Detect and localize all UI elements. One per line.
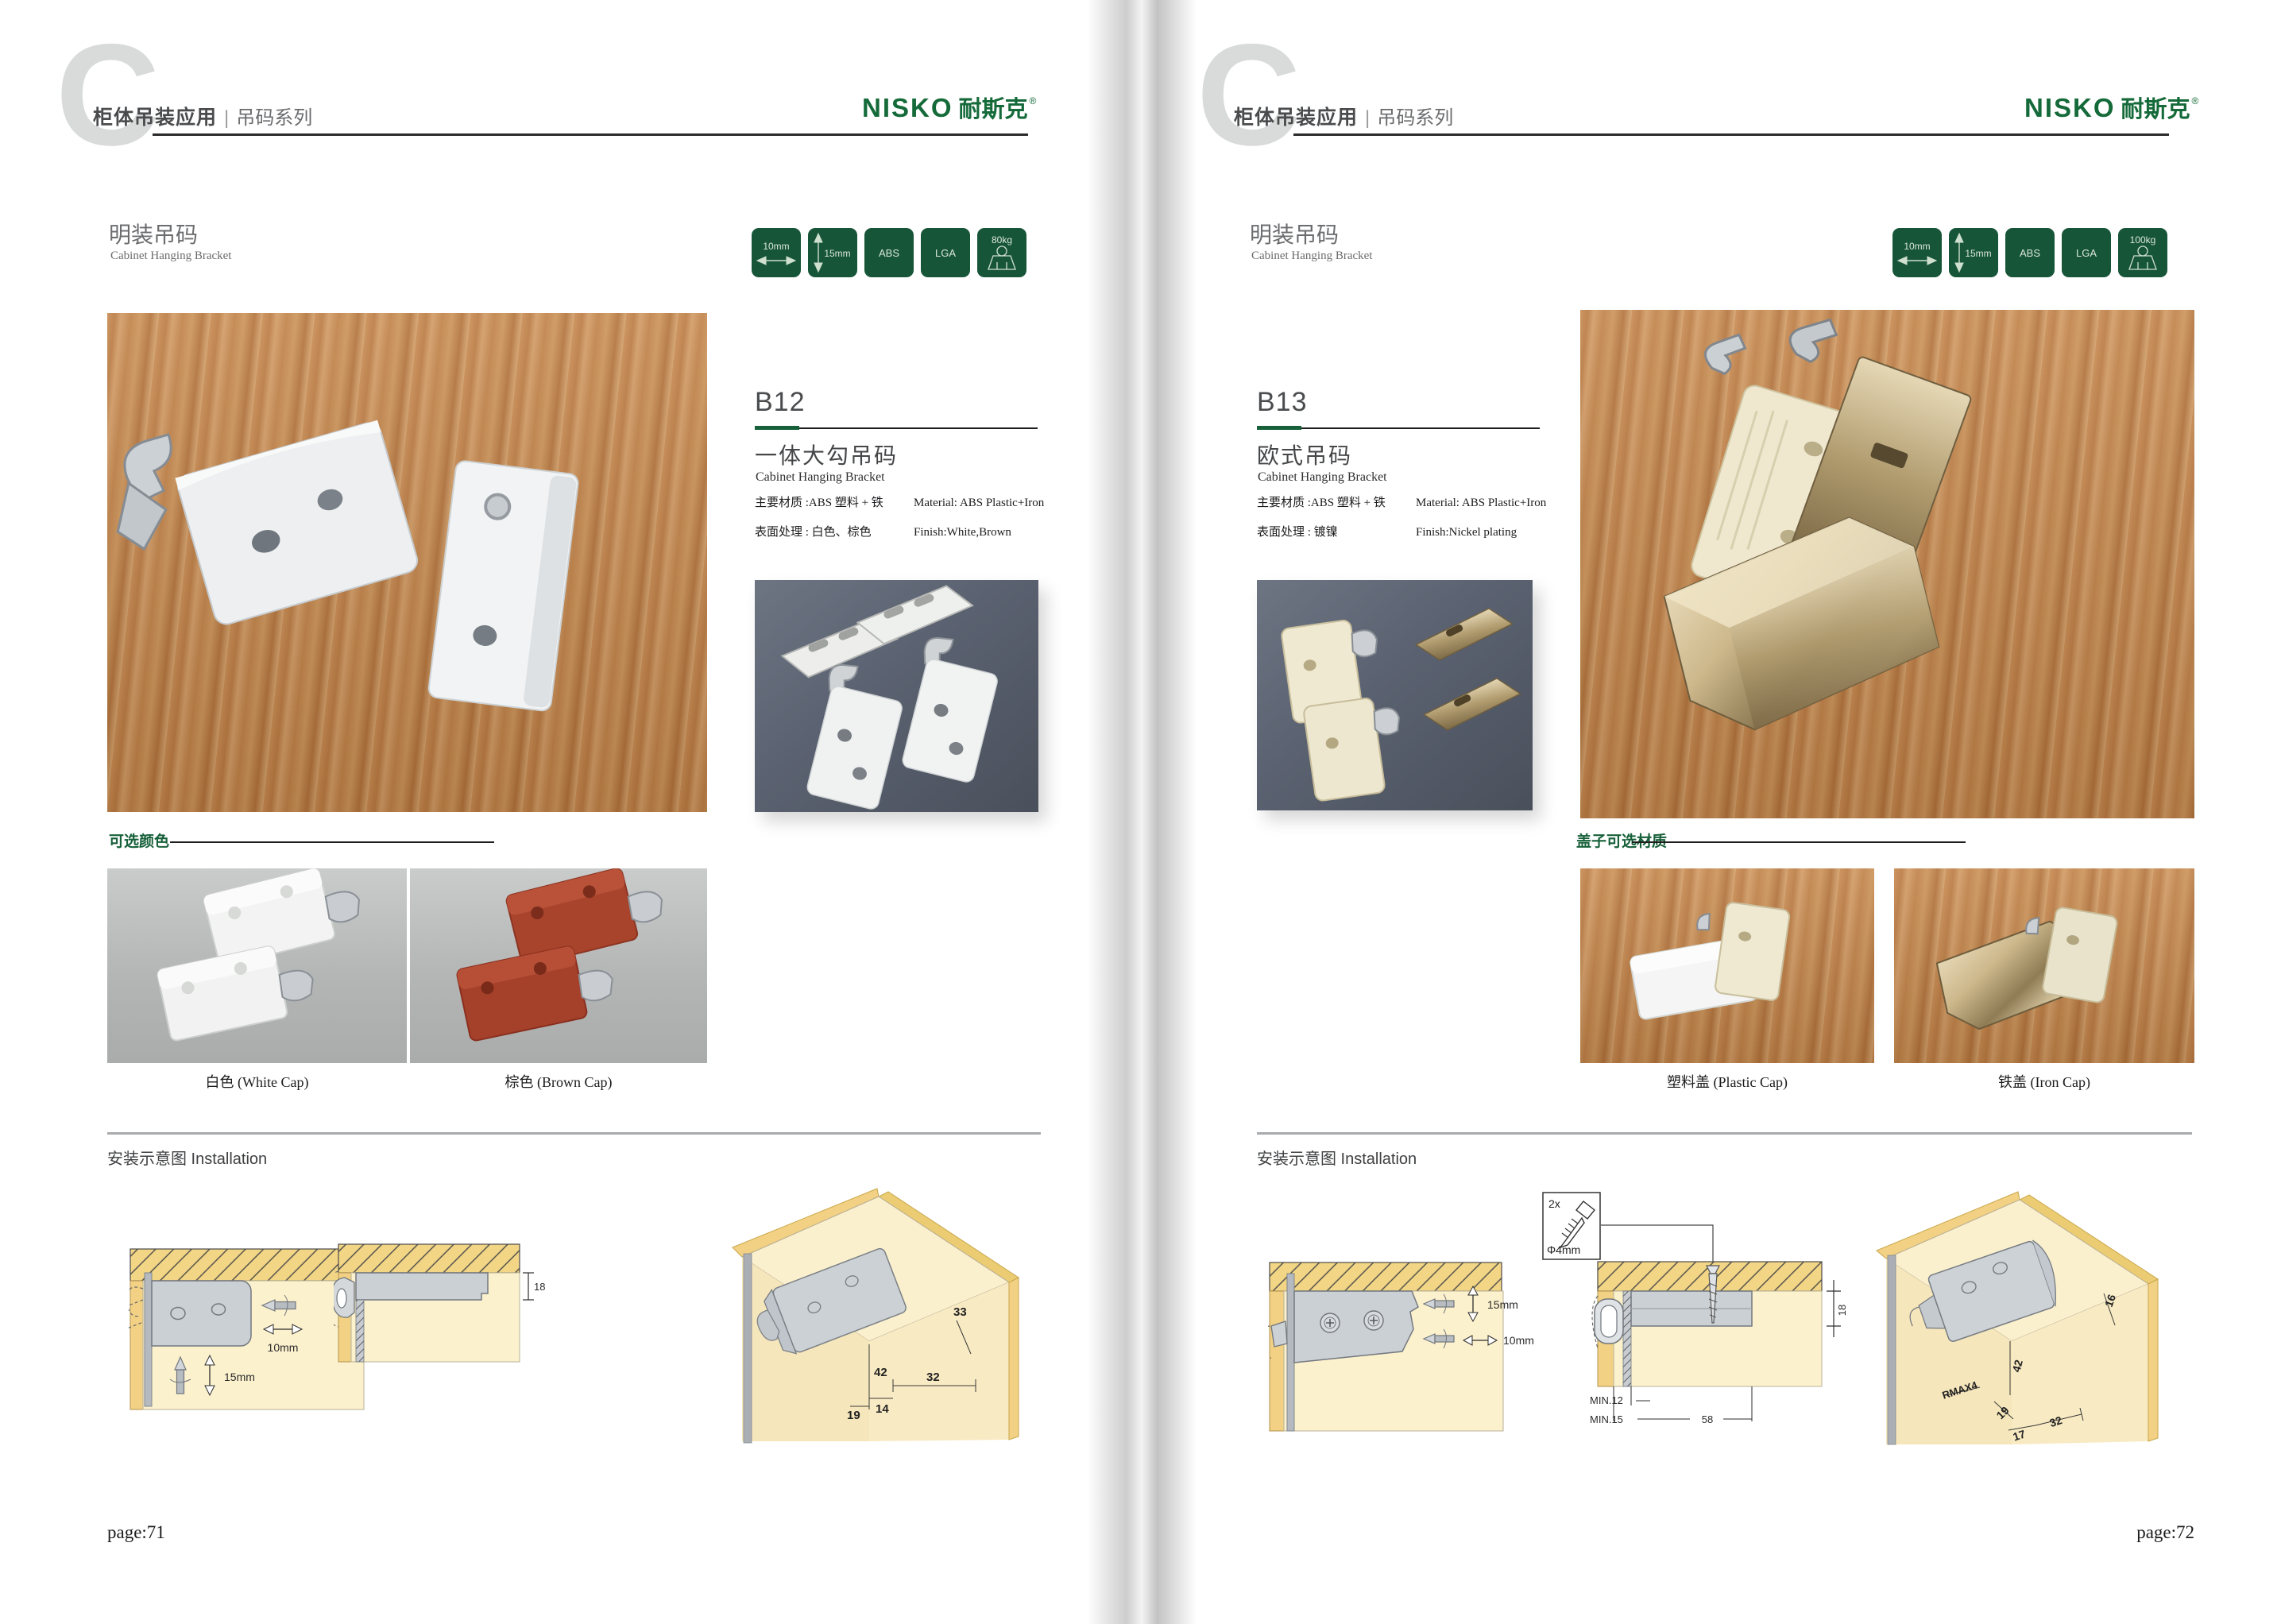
logo-chinese: 耐斯克 (959, 91, 1028, 124)
install-diagram-screws: 10mm 15mm (129, 1238, 367, 1429)
section-subtitle: Cabinet Hanging Bracket (1251, 249, 1372, 263)
option-photo-plastic (1580, 868, 1874, 1063)
header-divider: | (224, 107, 229, 130)
install-rule (107, 1132, 1041, 1135)
section-title: 明装吊码 (109, 218, 198, 249)
width-arrow-icon (1898, 257, 1936, 265)
hook-bracket (801, 660, 910, 810)
metal-hook (1788, 319, 1840, 365)
product-photo-detail (755, 580, 1038, 812)
svg-text:18: 18 (1836, 1305, 1848, 1316)
header-series: 吊码系列 (1377, 102, 1453, 130)
svg-text:15mm: 15mm (824, 248, 850, 259)
product-specs: 主要材质 :ABS 塑料 + 铁 Material: ABS Plastic+I… (755, 489, 1044, 547)
svg-text:10mm: 10mm (268, 1341, 299, 1354)
badge-lga: LGA (921, 228, 970, 277)
product-name-en: Cabinet Hanging Bracket (756, 470, 885, 485)
product-photo-main (1580, 310, 2194, 818)
catalog-page-72: C 柜体吊装应用 | 吊码系列 NISKO 耐斯克 ® 明装吊码 Cabinet… (1141, 0, 2281, 1624)
product-code-rule (1257, 426, 1540, 430)
svg-text:MIN.15: MIN.15 (1590, 1413, 1623, 1425)
svg-text:LGA: LGA (2076, 247, 2097, 259)
header-title: 柜体吊装应用 (1234, 102, 1358, 130)
svg-text:19: 19 (847, 1409, 860, 1422)
option-photo-iron (1894, 868, 2194, 1063)
svg-text:ABS: ABS (2020, 247, 2040, 259)
install-diagram-side: 18 MIN.12 MIN.15 58 (1590, 1258, 1852, 1429)
header-series: 吊码系列 (236, 102, 312, 130)
svg-text:2x: 2x (1548, 1197, 1560, 1210)
badge-material: ABS (864, 228, 914, 277)
svg-text:MIN.12: MIN.12 (1590, 1394, 1623, 1406)
spec-badges: 10mm 15mm ABS LGA 100kg (1892, 228, 2167, 277)
badge-width: 10mm (1892, 228, 1942, 277)
brown-cap-product (505, 868, 670, 967)
svg-text:Φ4mm: Φ4mm (1547, 1243, 1580, 1256)
options-label: 盖子可选材质 (1576, 829, 1667, 851)
catalog-page-71: C 柜体吊装应用 | 吊码系列 NISKO 耐斯克 ® 明装吊码 Cabinet… (0, 0, 1141, 1624)
product-photo-detail (1257, 580, 1533, 810)
header-title: 柜体吊装应用 (93, 102, 217, 130)
option-caption: 铁盖 (Iron Cap) (1894, 1071, 2194, 1092)
svg-text:15mm: 15mm (1965, 248, 1991, 259)
height-arrow-icon (814, 234, 822, 272)
svg-text:33: 33 (953, 1305, 967, 1319)
install-heading: 安装示意图 Installation (107, 1146, 267, 1169)
plastic-bracket (1303, 694, 1409, 802)
product-specs: 主要材质 :ABS 塑料 + 铁 Material: ABS Plastic+I… (1257, 489, 1546, 547)
spec-row: 表面处理 : 白色、棕色 Finish:White,Brown (755, 518, 1044, 547)
page-number: page:71 (107, 1522, 165, 1543)
height-arrow-icon (1955, 234, 1963, 272)
svg-text:14: 14 (876, 1402, 889, 1416)
badge-width: 10mm (752, 228, 801, 277)
nickel-rail-plate (1412, 604, 1517, 665)
phillips-screw-icon (1364, 1311, 1383, 1330)
brand-logo: NISKO 耐斯克 ® (862, 91, 1036, 124)
bracket-white-standing (427, 460, 578, 712)
option-photo-brown (410, 868, 707, 1063)
product-code: B13 (1257, 387, 1308, 418)
option-caption: 白色 (White Cap) (107, 1071, 407, 1092)
option-caption: 塑料盖 (Plastic Cap) (1580, 1071, 1874, 1092)
product-code: B12 (755, 387, 806, 418)
section-subtitle: Cabinet Hanging Bracket (110, 249, 231, 263)
svg-text:80kg: 80kg (992, 234, 1012, 246)
badge-material: ABS (2005, 228, 2055, 277)
registered-mark: ® (1030, 95, 1037, 106)
svg-text:42: 42 (874, 1366, 887, 1379)
metal-hook (1703, 334, 1749, 377)
badge-height: 15mm (1949, 228, 1998, 277)
load-icon (988, 246, 1015, 269)
brand-logo: NISKO 耐斯克 ® (2024, 91, 2198, 124)
svg-text:10mm: 10mm (1503, 1334, 1534, 1347)
page-header: 柜体吊装应用 | 吊码系列 (93, 102, 312, 130)
phillips-screw-icon (1320, 1313, 1340, 1332)
product-name-cn: 一体大勾吊码 (755, 439, 898, 470)
header-divider: | (1365, 107, 1370, 130)
spec-row: 主要材质 :ABS 塑料 + 铁 Material: ABS Plastic+I… (755, 489, 1044, 518)
white-cap-product (203, 868, 367, 967)
chapter-letter: C (56, 22, 160, 167)
option-caption: 棕色 (Brown Cap) (410, 1071, 707, 1092)
logo-wordmark: NISKO (862, 93, 953, 123)
product-name-en: Cabinet Hanging Bracket (1258, 470, 1387, 485)
load-icon (2129, 246, 2156, 269)
badge-load: 100kg (2118, 228, 2167, 277)
white-cap-product (157, 938, 319, 1041)
svg-text:32: 32 (926, 1371, 940, 1384)
svg-text:58: 58 (1702, 1413, 1713, 1425)
install-diagram-perspective: 33 42 32 14 19 (723, 1177, 1033, 1464)
badge-lga: LGA (2062, 228, 2111, 277)
install-diagram-perspective: 16 42 RMAX4 19 17 32 (1869, 1182, 2171, 1456)
logo-chinese: 耐斯克 (2121, 91, 2190, 124)
svg-text:18: 18 (534, 1281, 545, 1293)
book-gutter (1087, 0, 1197, 1624)
svg-text:LGA: LGA (935, 247, 956, 259)
nickel-rail-plate (1420, 674, 1525, 735)
product-code-rule (755, 426, 1038, 430)
install-diagram-side: 18 (334, 1236, 548, 1371)
bracket-white-flat (107, 378, 420, 647)
chapter-letter: C (1197, 22, 1301, 167)
section-title: 明装吊码 (1250, 218, 1339, 249)
install-heading: 安装示意图 Installation (1257, 1146, 1417, 1169)
spec-row: 表面处理 : 镀镍 Finish:Nickel plating (1257, 518, 1546, 547)
logo-wordmark: NISKO (2024, 93, 2116, 123)
product-name-cn: 欧式吊码 (1257, 439, 1352, 470)
page-header: 柜体吊装应用 | 吊码系列 (1234, 102, 1453, 130)
svg-text:10mm: 10mm (763, 241, 789, 252)
header-rule (1293, 133, 2169, 136)
options-rule (1632, 841, 1966, 843)
svg-text:ABS: ABS (879, 247, 899, 259)
install-diagram-screws: 15mm 10mm (1268, 1258, 1538, 1436)
option-photo-white (107, 868, 407, 1063)
options-label: 可选颜色 (109, 829, 169, 851)
install-rule (1257, 1132, 2192, 1135)
brown-cap-product (456, 938, 619, 1041)
header-rule (153, 133, 1028, 136)
hook-bracket (896, 633, 1005, 783)
spec-row: 主要材质 :ABS 塑料 + 铁 Material: ABS Plastic+I… (1257, 489, 1546, 518)
svg-text:100kg: 100kg (2130, 234, 2156, 246)
spec-badges: 10mm 15mm ABS LGA 80kg (752, 228, 1026, 277)
svg-text:10mm: 10mm (1904, 241, 1930, 252)
svg-text:15mm: 15mm (1487, 1298, 1518, 1311)
product-photo-main (107, 313, 707, 812)
width-arrow-icon (757, 257, 795, 265)
page-number: page:72 (2051, 1522, 2194, 1543)
svg-text:15mm: 15mm (224, 1371, 255, 1383)
badge-load: 80kg (977, 228, 1026, 277)
badge-height: 15mm (808, 228, 857, 277)
registered-mark: ® (2192, 95, 2199, 106)
options-rule (170, 841, 494, 843)
